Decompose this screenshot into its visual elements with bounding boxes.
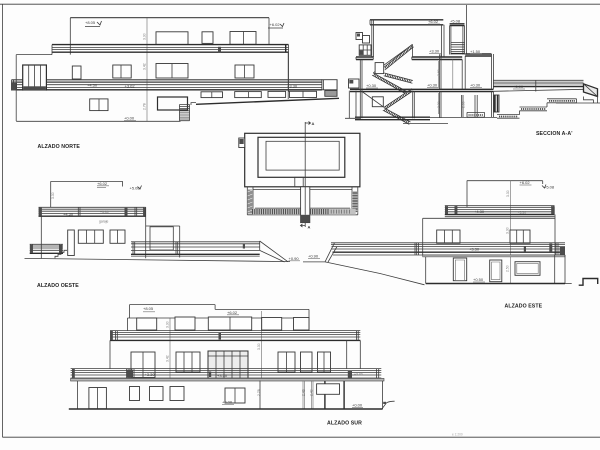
svg-text:3.30: 3.30 — [166, 321, 170, 328]
svg-text:e 1:200: e 1:200 — [452, 433, 463, 437]
svg-text:2.78: 2.78 — [143, 103, 147, 110]
svg-text:3.30: 3.30 — [51, 192, 55, 199]
svg-text:2.40: 2.40 — [310, 389, 314, 396]
svg-text:+3.30: +3.30 — [354, 373, 363, 377]
svg-text:+3.30: +3.30 — [469, 247, 480, 252]
svg-text:+0.00: +0.00 — [222, 400, 233, 405]
svg-text:garaje: garaje — [99, 220, 109, 224]
svg-text:+6.02: +6.02 — [520, 180, 531, 185]
svg-text:+6.02: +6.02 — [227, 310, 238, 315]
svg-text:+3.30: +3.30 — [518, 211, 527, 215]
svg-text:+0.30: +0.30 — [427, 83, 438, 88]
svg-text:+0.90: +0.90 — [308, 254, 319, 259]
svg-text:+4.30: +4.30 — [474, 209, 485, 214]
svg-text:+0.00: +0.00 — [124, 116, 135, 121]
svg-text:ALZADO NORTE: ALZADO NORTE — [38, 144, 81, 150]
svg-text:2.48: 2.48 — [302, 389, 306, 396]
svg-text:A: A — [308, 225, 311, 230]
svg-text:+8.05: +8.05 — [143, 306, 154, 311]
svg-text:+0.00: +0.00 — [352, 403, 363, 408]
svg-text:+1.50: +1.50 — [470, 49, 481, 54]
svg-text:+3.30: +3.30 — [287, 84, 298, 89]
svg-text:+0.90: +0.90 — [289, 256, 300, 261]
svg-text:+3.30: +3.30 — [100, 210, 109, 214]
svg-text:3.30: 3.30 — [506, 190, 510, 197]
svg-text:SECCION A-A': SECCION A-A' — [536, 131, 573, 137]
svg-text:+3.02: +3.02 — [125, 84, 136, 89]
svg-text:2.50: 2.50 — [437, 101, 441, 108]
svg-text:+5.08: +5.08 — [450, 19, 461, 24]
svg-text:+3.30: +3.30 — [217, 373, 228, 378]
svg-text:+8.05: +8.05 — [85, 20, 96, 25]
svg-text:2.50: 2.50 — [462, 101, 466, 108]
svg-text:+0.30: +0.30 — [366, 83, 377, 88]
svg-text:+6.02: +6.02 — [428, 19, 439, 24]
svg-text:2.50: 2.50 — [506, 265, 510, 272]
svg-text:3.42: 3.42 — [166, 355, 170, 362]
svg-text:+3.30: +3.30 — [145, 372, 156, 377]
svg-text:2.80: 2.80 — [437, 69, 441, 76]
svg-text:+0.30: +0.30 — [470, 83, 481, 88]
svg-text:+0.50: +0.50 — [473, 277, 484, 282]
svg-text:+4.30: +4.30 — [87, 83, 98, 88]
svg-text:+4.30: +4.30 — [63, 212, 74, 217]
svg-text:3.30: 3.30 — [257, 343, 261, 350]
svg-text:+3.30: +3.30 — [429, 49, 440, 54]
svg-text:A: A — [312, 121, 315, 126]
svg-text:ALZADO SUR: ALZADO SUR — [327, 421, 362, 427]
svg-text:ALZADO OESTE: ALZADO OESTE — [37, 283, 79, 289]
svg-text:3.42: 3.42 — [143, 63, 147, 70]
svg-text:3.30: 3.30 — [506, 227, 510, 234]
svg-text:+6.02: +6.02 — [270, 22, 281, 27]
svg-text:+0.90: +0.90 — [513, 84, 524, 89]
svg-text:3.30: 3.30 — [143, 33, 147, 40]
svg-text:+6.02: +6.02 — [97, 181, 108, 186]
svg-text:ALZADO ESTE: ALZADO ESTE — [505, 304, 543, 310]
